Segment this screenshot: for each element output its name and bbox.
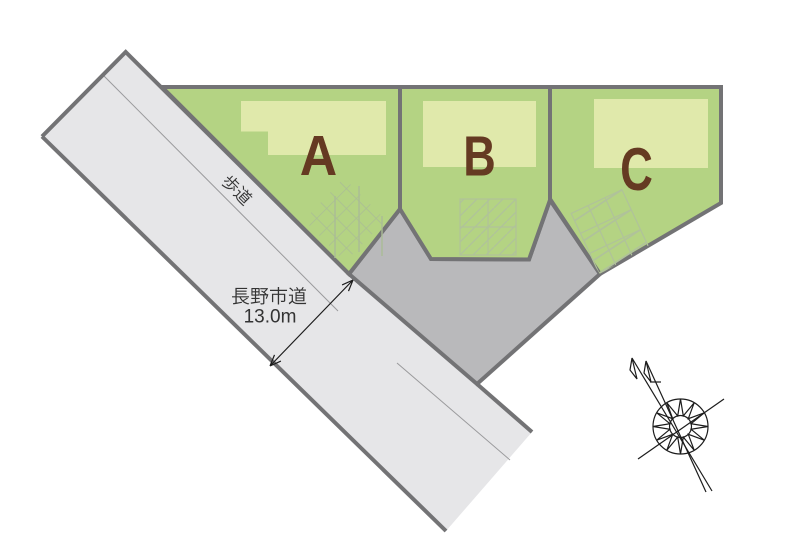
svg-text:A: A bbox=[300, 124, 337, 188]
svg-text:B: B bbox=[463, 124, 496, 187]
svg-text:C: C bbox=[620, 137, 653, 204]
svg-text:13.0m: 13.0m bbox=[244, 306, 297, 327]
